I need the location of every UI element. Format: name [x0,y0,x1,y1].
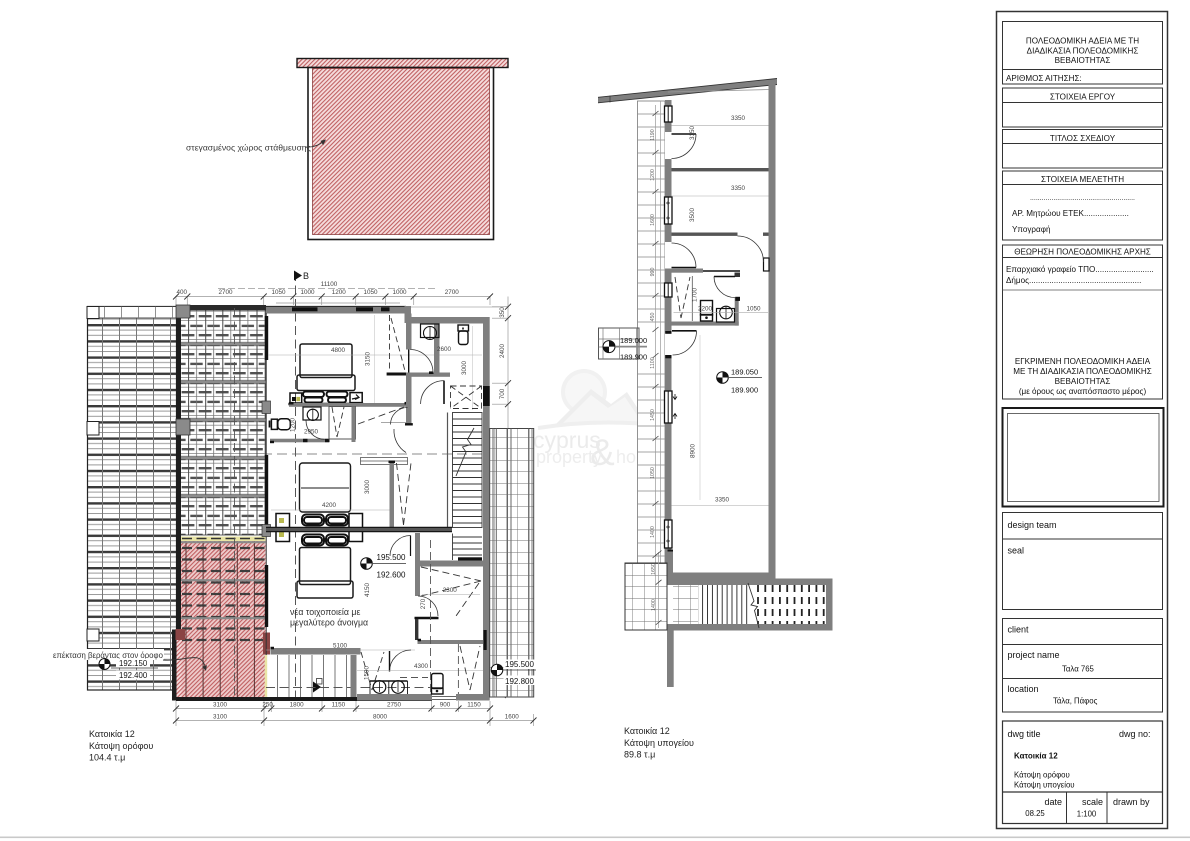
svg-text:189.000: 189.000 [620,336,647,345]
svg-text:250: 250 [262,702,273,709]
svg-text:ΑΡΙΘΜΟΣ ΑΙΤΗΣΗΣ:: ΑΡΙΘΜΟΣ ΑΙΤΗΣΗΣ: [1006,74,1082,83]
svg-text:νέα τοιχοποιεία με: νέα τοιχοποιεία με [290,607,360,617]
svg-text:location: location [1008,684,1039,694]
svg-text:Υπογραφή: Υπογραφή [1012,225,1050,234]
svg-text:89.8 τ.μ: 89.8 τ.μ [624,750,655,760]
svg-text:195.500: 195.500 [377,553,406,562]
svg-text:3000: 3000 [461,361,468,376]
svg-text:B: B [303,271,309,281]
svg-text:scale: scale [1082,797,1103,807]
svg-text:1800: 1800 [290,702,305,709]
svg-text:3500: 3500 [689,208,696,223]
svg-text:ΣΤΟΙΧΕΙΑ ΕΡΓΟΥ: ΣΤΟΙΧΕΙΑ ΕΡΓΟΥ [1050,93,1116,102]
svg-text:Κατοικία 12: Κατοικία 12 [89,729,135,739]
svg-text:195.500: 195.500 [505,660,534,669]
svg-text:192.150: 192.150 [119,659,148,668]
svg-text:Κατοικία 12: Κατοικία 12 [1014,752,1058,761]
svg-text:μεγαλύτερο άνοιγμα: μεγαλύτερο άνοιγμα [290,618,368,628]
svg-text:Κατοικία 12: Κατοικία 12 [624,726,670,736]
svg-text:350: 350 [499,307,506,318]
svg-text:3100: 3100 [213,714,228,721]
svg-text:1400: 1400 [650,526,656,538]
svg-text:Κάτοψη ορόφου: Κάτοψη ορόφου [1014,771,1070,780]
svg-text:8000: 8000 [373,714,388,721]
svg-text:4150: 4150 [364,583,371,598]
svg-text:ΘΕΩΡΗΣΗ ΠΟΛΕΟΔΟΜΙΚΗΣ ΑΡΧΗΣ: ΘΕΩΡΗΣΗ ΠΟΛΕΟΔΟΜΙΚΗΣ ΑΡΧΗΣ [1014,248,1151,257]
svg-text:(με όρους ως αναπόσπαστο μέρος: (με όρους ως αναπόσπαστο μέρος) [1019,387,1147,396]
svg-text:3350: 3350 [715,497,730,504]
svg-text:1200: 1200 [332,289,347,296]
svg-text:Επαρχιακό γραφείο ΤΠΟ.........: Επαρχιακό γραφείο ΤΠΟ...................… [1006,265,1154,274]
svg-text:ΜΕ ΤΗ ΔΙΑΔΙΚΑΣΙΑ ΠΟΛΕΟΔΟΜΙΚΗΣ: ΜΕ ΤΗ ΔΙΑΔΙΚΑΣΙΑ ΠΟΛΕΟΔΟΜΙΚΗΣ [1013,367,1152,376]
svg-text:192.400: 192.400 [119,671,148,680]
svg-text:2300: 2300 [443,587,458,594]
svg-text:1600: 1600 [650,214,656,226]
svg-text:1150: 1150 [467,702,481,709]
svg-text:990: 990 [650,268,656,277]
svg-text:3350: 3350 [731,185,746,192]
svg-text:ΤΙΤΛΟΣ ΣΧΕΔΙΟΥ: ΤΙΤΛΟΣ ΣΧΕΔΙΟΥ [1050,134,1116,143]
svg-text:1650: 1650 [651,563,657,575]
svg-text:client: client [1008,625,1030,635]
svg-text:4300: 4300 [414,663,429,670]
svg-text:1190: 1190 [650,129,656,140]
svg-text:Κάτοψη υπογείου: Κάτοψη υπογείου [1014,781,1075,790]
svg-text:..............................: ........................................… [1030,195,1135,202]
svg-text:3150: 3150 [689,126,696,141]
svg-text:3350: 3350 [731,115,746,122]
svg-text:1100: 1100 [650,357,656,368]
svg-text:1200: 1200 [290,418,297,433]
svg-text:1700: 1700 [692,288,699,303]
svg-text:3150: 3150 [364,352,371,367]
svg-text:dwg title: dwg title [1008,729,1041,739]
svg-text:design team: design team [1008,520,1057,530]
svg-text:1:100: 1:100 [1077,810,1097,819]
svg-text:ΠΟΛΕΟΔΟΜΙΚΗ ΑΔΕΙΑ ΜΕ ΤΗ: ΠΟΛΕΟΔΟΜΙΚΗ ΑΔΕΙΑ ΜΕ ΤΗ [1026,37,1139,46]
svg-text:189.900: 189.900 [731,386,758,395]
svg-text:400: 400 [176,289,187,296]
svg-text:ΒΕΒΑΙΟΤΗΤΑΣ: ΒΕΒΑΙΟΤΗΤΑΣ [1055,377,1111,386]
svg-text:1590: 1590 [364,666,371,681]
svg-text:2700: 2700 [445,289,460,296]
svg-text:4200: 4200 [322,502,337,509]
svg-text:ΣΤΟΙΧΕΙΑ ΜΕΛΕΤΗΤΗ: ΣΤΟΙΧΕΙΑ ΜΕΛΕΤΗΤΗ [1041,175,1124,184]
svg-text:Κάτοψη ορόφου: Κάτοψη ορόφου [89,741,153,751]
svg-text:700: 700 [499,388,506,399]
svg-text:1050: 1050 [650,467,656,479]
svg-text:2200: 2200 [698,306,713,313]
svg-text:Τάλα, Πάφος: Τάλα, Πάφος [1053,697,1098,706]
svg-text:1150: 1150 [332,702,346,709]
svg-text:date: date [1044,797,1062,807]
svg-text:seal: seal [1008,546,1025,556]
svg-text:1600: 1600 [505,714,520,721]
svg-text:2700: 2700 [218,289,233,296]
svg-text:450: 450 [650,313,656,322]
svg-text:1050: 1050 [271,289,286,296]
svg-text:Ταλα 765: Ταλα 765 [1062,665,1095,674]
svg-text:192.600: 192.600 [377,571,406,580]
svg-text:ΒΕΒΑΙΟΤΗΤΑΣ: ΒΕΒΑΙΟΤΗΤΑΣ [1055,56,1111,65]
svg-text:189.050: 189.050 [731,368,758,377]
svg-text:dwg no:: dwg no: [1119,729,1151,739]
svg-text:189.900: 189.900 [620,353,647,362]
svg-text:Δήμος.........................: Δήμος...................................… [1006,276,1141,285]
svg-text:4800: 4800 [331,347,346,354]
svg-text:270: 270 [420,598,427,609]
svg-text:1000: 1000 [392,289,407,296]
svg-text:3100: 3100 [213,702,228,709]
svg-text:Κάτοψη υπογείου: Κάτοψη υπογείου [624,738,694,748]
svg-text:στεγασμένος χώρος στάθμευσης: στεγασμένος χώρος στάθμευσης [186,143,311,153]
svg-text:8900: 8900 [690,444,697,459]
svg-text:drawn by: drawn by [1113,797,1150,807]
svg-text:project name: project name [1008,650,1060,660]
svg-text:2750: 2750 [387,702,402,709]
svg-text:3000: 3000 [364,480,371,495]
svg-text:1200: 1200 [650,169,656,181]
svg-text:2400: 2400 [499,344,506,359]
svg-text:2600: 2600 [437,346,452,353]
svg-text:1000: 1000 [300,289,315,296]
svg-text:1050: 1050 [746,306,761,313]
svg-text:1450: 1450 [650,409,656,421]
svg-text:ΕΓΚΡΙΜΕΝΗ ΠΟΛΕΟΔΟΜΙΚΗ ΑΔΕΙΑ: ΕΓΚΡΙΜΕΝΗ ΠΟΛΕΟΔΟΜΙΚΗ ΑΔΕΙΑ [1015,357,1151,366]
svg-text:ΑΡ. Μητρώου ΕΤΕΚ..............: ΑΡ. Μητρώου ΕΤΕΚ.................... [1012,209,1129,218]
svg-text:192.800: 192.800 [505,677,534,686]
svg-text:property: property [536,447,602,467]
svg-text:08.25: 08.25 [1025,809,1045,818]
svg-text:1400: 1400 [651,599,657,611]
svg-text:1050: 1050 [363,289,378,296]
svg-text:104.4 τ.μ: 104.4 τ.μ [89,753,125,763]
svg-text:900: 900 [440,702,451,709]
svg-text:ΔΙΑΔΙΚΑΣΙΑ ΠΟΛΕΟΔΟΜΙΚΗΣ: ΔΙΑΔΙΚΑΣΙΑ ΠΟΛΕΟΔΟΜΙΚΗΣ [1027,46,1139,55]
svg-text:2950: 2950 [304,429,319,436]
svg-text:11100: 11100 [321,281,338,288]
